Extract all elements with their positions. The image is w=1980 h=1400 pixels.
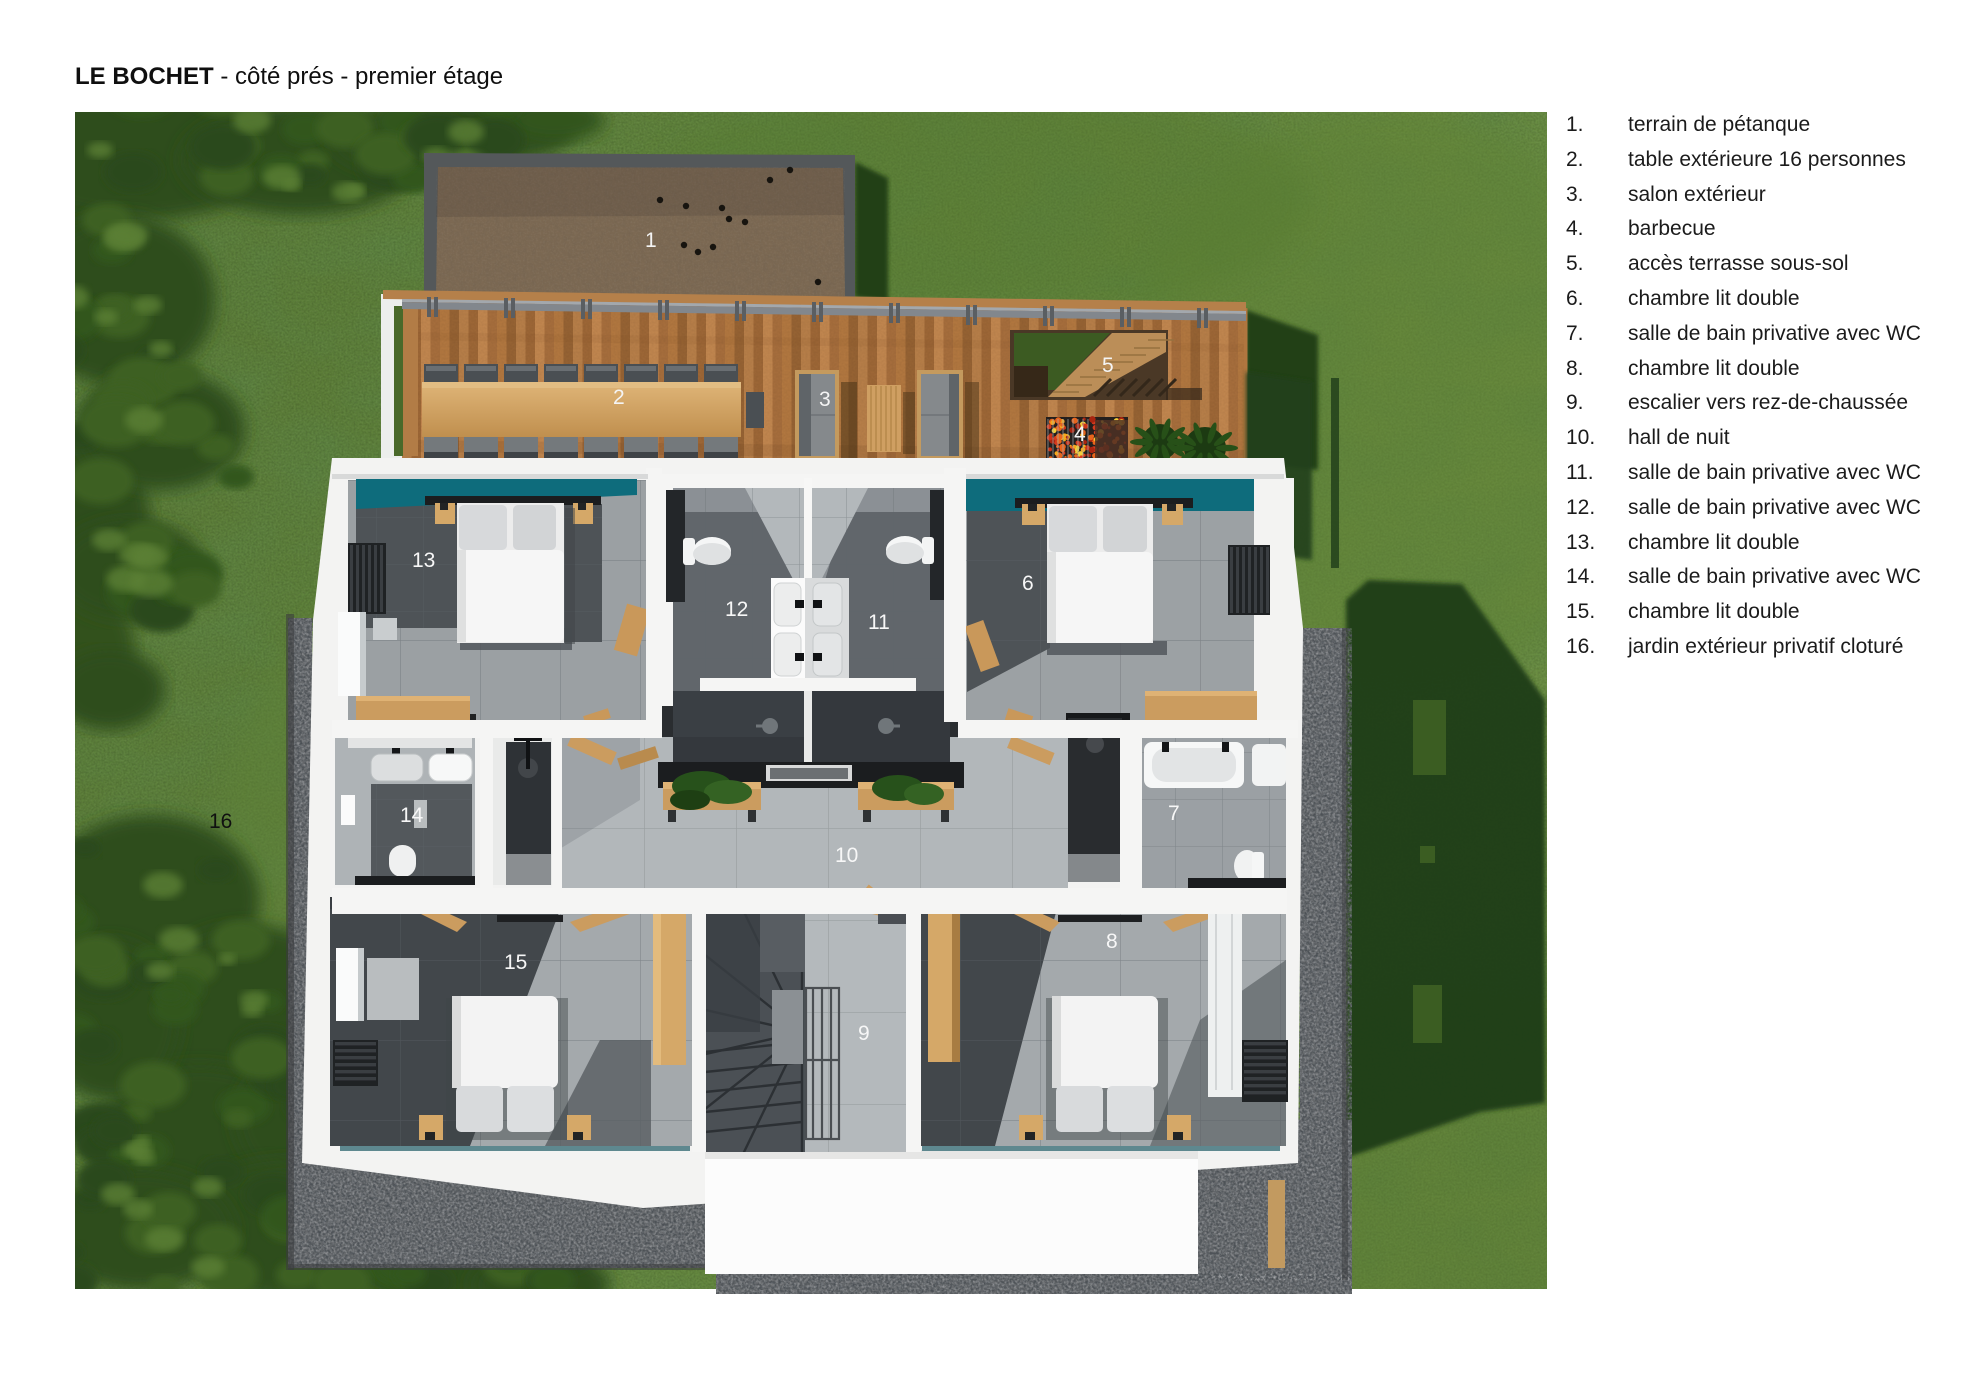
svg-text:4.: 4.	[1566, 217, 1584, 240]
svg-text:1: 1	[645, 229, 657, 252]
svg-text:14.: 14.	[1566, 565, 1595, 588]
svg-text:salle de bain privative avec W: salle de bain privative avec WC	[1628, 461, 1921, 484]
svg-text:3: 3	[819, 388, 831, 411]
svg-text:7.: 7.	[1566, 322, 1584, 345]
svg-text:2: 2	[613, 386, 625, 409]
svg-text:16: 16	[209, 810, 232, 833]
svg-text:salle de bain privative avec W: salle de bain privative avec WC	[1628, 565, 1921, 588]
svg-text:11.: 11.	[1566, 461, 1594, 484]
svg-text:barbecue: barbecue	[1628, 217, 1716, 240]
svg-text:chambre lit double: chambre lit double	[1628, 357, 1800, 380]
svg-text:chambre lit double: chambre lit double	[1628, 531, 1800, 554]
svg-text:6.: 6.	[1566, 287, 1584, 310]
svg-text:LE BOCHET - côté prés - premie: LE BOCHET - côté prés - premier étage	[75, 63, 503, 90]
svg-text:salon extérieur: salon extérieur	[1628, 183, 1766, 206]
svg-text:13.: 13.	[1566, 531, 1595, 554]
svg-text:salle de bain privative avec W: salle de bain privative avec WC	[1628, 496, 1921, 519]
svg-text:3.: 3.	[1566, 183, 1584, 206]
svg-text:1.: 1.	[1566, 113, 1584, 136]
svg-text:16.: 16.	[1566, 635, 1595, 658]
svg-text:14: 14	[400, 804, 424, 827]
svg-text:6: 6	[1022, 572, 1034, 595]
svg-text:hall de nuit: hall de nuit	[1628, 426, 1730, 449]
svg-text:7: 7	[1168, 802, 1180, 825]
svg-text:jardin extérieur privatif clot: jardin extérieur privatif cloturé	[1627, 635, 1903, 658]
svg-text:9: 9	[858, 1022, 870, 1045]
svg-text:4: 4	[1074, 423, 1086, 446]
svg-text:accès terrasse sous-sol: accès terrasse sous-sol	[1628, 252, 1849, 275]
svg-text:escalier vers rez-de-chaussée: escalier vers rez-de-chaussée	[1628, 391, 1908, 414]
svg-text:terrain de pétanque: terrain de pétanque	[1628, 113, 1810, 136]
svg-text:8.: 8.	[1566, 357, 1584, 380]
svg-text:15: 15	[504, 951, 527, 974]
svg-text:8: 8	[1106, 930, 1118, 953]
svg-text:salle de bain privative avec W: salle de bain privative avec WC	[1628, 322, 1921, 345]
svg-text:12.: 12.	[1566, 496, 1595, 519]
svg-text:11: 11	[868, 611, 890, 634]
svg-text:2.: 2.	[1566, 148, 1584, 171]
svg-text:10.: 10.	[1566, 426, 1595, 449]
svg-text:12: 12	[725, 598, 748, 621]
svg-text:5.: 5.	[1566, 252, 1584, 275]
svg-text:chambre lit double: chambre lit double	[1628, 287, 1800, 310]
svg-text:chambre lit double: chambre lit double	[1628, 600, 1800, 623]
svg-text:10: 10	[835, 844, 858, 867]
svg-text:15.: 15.	[1566, 600, 1595, 623]
svg-text:5: 5	[1102, 354, 1114, 377]
svg-text:13: 13	[412, 549, 435, 572]
svg-text:9.: 9.	[1566, 391, 1584, 414]
svg-text:table extérieure 16 personnes: table extérieure 16 personnes	[1628, 148, 1906, 171]
